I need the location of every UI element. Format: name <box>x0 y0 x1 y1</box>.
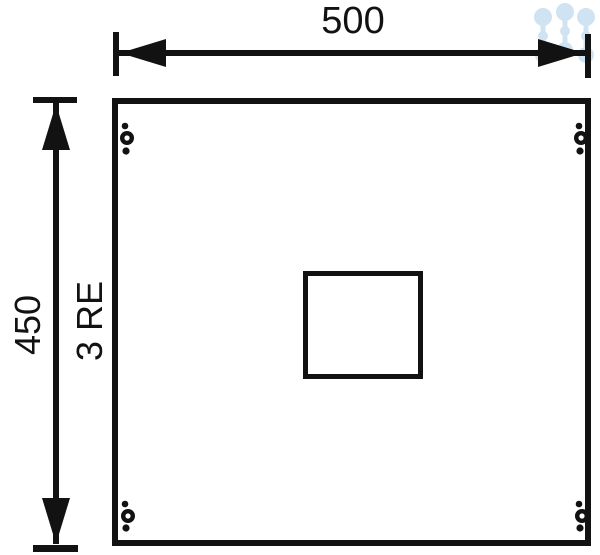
height-dimension-tick-bottom <box>33 545 78 552</box>
cutout-edge-left <box>303 271 308 379</box>
drawing-ink: 500 450 3 RE <box>7 0 591 552</box>
panel-edge-bottom <box>112 540 591 546</box>
height-dimension-tick-top <box>33 97 77 103</box>
center-cutout <box>303 271 423 379</box>
height-dimension-arrow-top <box>42 104 70 150</box>
panel-edge-right <box>585 98 591 546</box>
cutout-edge-top <box>303 271 423 276</box>
rack-units-label: 3 RE <box>69 281 110 361</box>
technical-drawing: 500 450 3 RE <box>0 0 600 555</box>
height-dimension-line <box>53 103 59 544</box>
mounting-holes-top-left <box>120 123 134 155</box>
height-dimension-label: 450 <box>7 295 48 355</box>
panel-edge-top <box>112 98 591 104</box>
cutout-edge-bottom <box>303 374 423 379</box>
panel-edge-left <box>112 98 118 546</box>
height-dimension-arrow-bottom <box>42 498 70 544</box>
cutout-edge-right <box>418 271 423 379</box>
width-dimension: 500 <box>113 0 591 78</box>
height-dimension: 450 <box>7 97 78 552</box>
width-dimension-arrow-left <box>120 39 166 67</box>
panel-outline <box>112 98 591 546</box>
mounting-holes-bottom-left <box>121 501 135 532</box>
width-dimension-label: 500 <box>321 0 384 42</box>
drawing-canvas: 500 450 3 RE <box>0 0 600 555</box>
width-dimension-line <box>118 50 586 56</box>
